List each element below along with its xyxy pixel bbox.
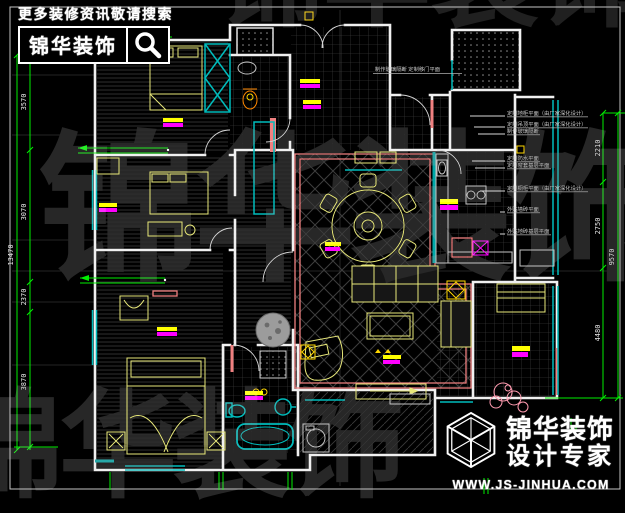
annotation-r8: 外贴地砖基层平面 [507, 227, 549, 235]
footer-website: WWW.JS-JINHUA.COM [442, 478, 620, 492]
dim-right-1: 2210 [594, 140, 602, 157]
footer-brand: 锦华装饰 [506, 416, 614, 443]
banner-tagline: 更多装修资讯敬请搜索 [18, 4, 173, 24]
annotation-r1: 定制地柜平面（由厂家深化设计） [507, 109, 586, 117]
annotation-r2: 定制吊顶平面（由厂家深化设计） [507, 120, 586, 128]
footer-subtitle: 设计专家 [506, 444, 614, 469]
cube-logo-icon [442, 409, 500, 476]
annotation-r3: 制作玻璃隔断 [507, 127, 539, 135]
pink-wall-strip [270, 118, 276, 152]
rug-round [256, 313, 290, 347]
brand-name: 锦华装饰 [20, 28, 128, 62]
dim-right-overall: 9570 [608, 249, 616, 266]
promo-banner: 更多装修资讯敬请搜索 锦华装饰 [18, 4, 173, 64]
dim-left-2: 3070 [20, 204, 28, 221]
dim-left-1: 3570 [20, 94, 28, 111]
dim-right-3: 4480 [594, 325, 602, 342]
shelf [520, 250, 554, 266]
brand-search-box: 锦华装饰 [18, 26, 170, 64]
annotation-r7: 外贴墙砖平面 [507, 205, 539, 213]
dim-right-2: 2750 [594, 218, 602, 235]
annotation-r4: 定制防水平面 [507, 154, 539, 162]
company-logo-block: 锦华装饰 设计专家 WWW.JS-JINHUA.COM [442, 409, 620, 492]
search-icon [128, 28, 168, 62]
dimensions-bottom [110, 472, 488, 494]
annotation-r6: 定制橱柜平面（由厂家深化设计） [507, 184, 586, 192]
annotation-top: 制作玻璃隔断 定制移门平面 [375, 65, 440, 73]
dim-left-3: 2370 [20, 289, 28, 306]
annotation-r5: 定制窗套基层平面 [507, 161, 549, 169]
dim-left-overall: 13470 [7, 244, 15, 265]
dim-left-4: 3870 [20, 374, 28, 391]
